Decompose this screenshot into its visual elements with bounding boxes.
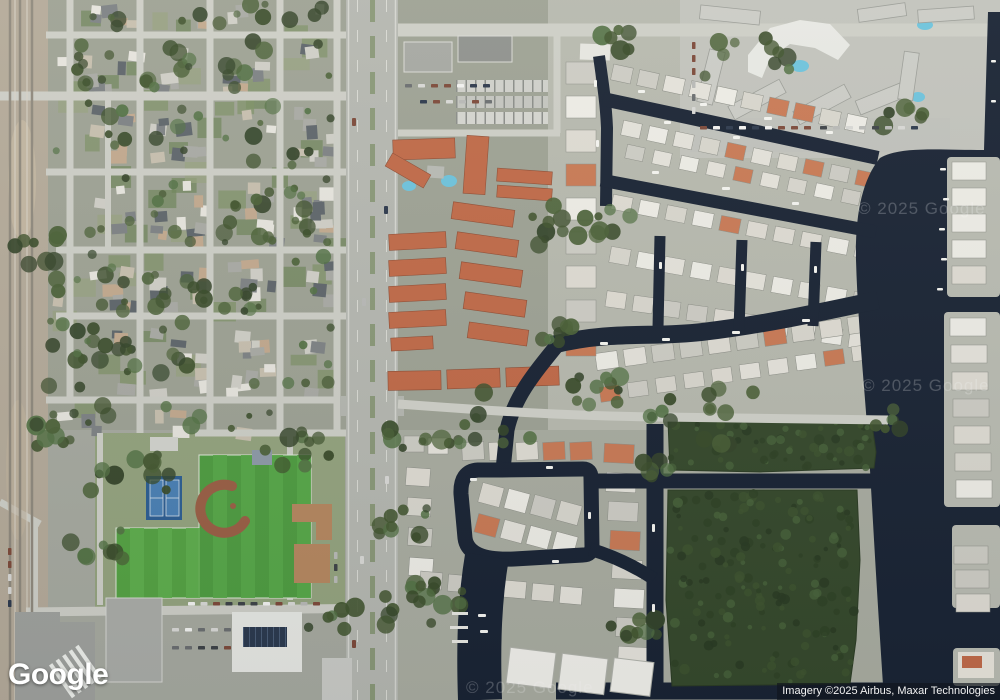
car [334,564,338,571]
tree [418,437,426,445]
satellite-map-canvas[interactable]: © 2025 Google © 2025 Google © 2025 Googl… [0,0,1000,700]
tree [660,463,674,477]
mangrove-canopy [798,553,802,557]
mangrove-canopy [779,622,786,629]
mangrove-canopy [763,581,767,585]
car [224,628,231,632]
mangrove-canopy [842,668,850,676]
car [778,126,785,130]
mangrove-canopy [760,456,768,464]
canal-home [683,371,705,389]
canal-home [627,380,649,398]
car [352,640,356,648]
tree [768,57,781,70]
car [418,84,425,88]
canal-home [566,266,596,288]
tree [590,221,609,240]
mangrove-canopy [813,589,822,598]
mangrove-canopy [800,507,808,515]
car [334,552,338,559]
canal-home [690,261,712,280]
mangrove-canopy [837,548,847,558]
boat [478,614,486,617]
house [158,118,169,126]
car [405,84,412,88]
house [315,157,327,167]
lawn [125,225,148,243]
tree [701,387,716,402]
mangrove-canopy [788,507,798,517]
mangrove-canopy [710,640,717,647]
tree [142,272,154,284]
tree [74,276,81,283]
tree [327,114,335,122]
tree [545,198,561,214]
tree [29,417,43,431]
tree [468,432,482,446]
tree [151,210,159,218]
tree [268,236,276,244]
tree [229,287,243,301]
mangrove-canopy [862,435,868,441]
car [362,298,366,306]
tree [87,322,100,335]
mangrove-canopy [699,579,703,583]
park-building [150,437,178,451]
tree [632,612,646,626]
tree [326,72,333,79]
tree [398,505,409,516]
boat [764,117,772,120]
car [898,126,905,130]
house [117,383,136,396]
tree [223,215,237,229]
canal-home [954,426,990,444]
mangrove-canopy [801,642,809,650]
mangrove-canopy [703,518,712,527]
condo-building [610,658,654,697]
mangrove-canopy [673,498,683,508]
mangrove-canopy [776,435,785,444]
car [211,646,218,650]
canal [658,236,660,328]
tree [323,450,334,461]
tree [569,226,588,245]
tree [470,406,487,423]
mangrove-canopy [778,559,786,567]
mangrove-canopy [723,562,728,567]
boat [741,264,744,271]
imagery-attribution: Imagery ©2025 Airbus, Maxar Technologies [777,683,1000,700]
tree [116,304,130,318]
boat [470,478,477,481]
tree [166,348,179,361]
tree [881,424,890,433]
mangrove-canopy [695,422,700,427]
tree [413,595,425,607]
mangrove-canopy [826,453,833,460]
tree [606,621,617,632]
townhome-row [447,368,501,389]
map-viewport[interactable]: © 2025 Google © 2025 Google © 2025 Googl… [0,0,1000,700]
mangrove-canopy [692,496,701,505]
canal-home [623,347,647,367]
canal-home [566,96,596,118]
tree [105,130,113,138]
car [700,126,707,130]
car [804,126,811,130]
car [483,84,490,88]
tree [83,482,99,498]
tree [274,457,290,473]
car [726,126,733,130]
canal-home [531,583,554,602]
tree [577,210,594,227]
tree [152,195,164,207]
tree [249,378,260,389]
mangrove-canopy [752,519,760,527]
tree [265,98,281,114]
mangrove-canopy [693,608,701,616]
tree [218,57,236,75]
car [276,602,283,606]
boat [594,80,597,87]
boat [802,319,810,322]
house [294,107,303,120]
tree [94,462,110,478]
canal-home [405,467,430,487]
mangrove-canopy [775,497,781,503]
car [446,100,453,104]
tree [193,111,203,121]
tree [582,398,596,412]
mangrove-canopy [674,448,679,453]
tree [572,396,582,406]
tree [322,376,335,389]
canal-home [604,443,635,464]
mangrove-canopy [719,608,726,615]
car [301,602,308,606]
tree [426,618,436,628]
canal-home [605,291,627,310]
mangrove-canopy [740,422,748,430]
mangrove-canopy [715,593,722,600]
mangrove-canopy [727,599,736,608]
car [692,81,696,88]
tree [279,428,298,447]
tree [635,454,652,471]
mangrove-canopy [820,626,830,636]
tree [111,342,126,357]
tree [717,404,734,421]
tree [228,81,241,94]
tree [53,147,60,154]
tree [712,434,731,453]
mangrove-canopy [761,626,766,631]
tree [299,218,316,235]
building [404,42,452,72]
mangrove-canopy [676,514,681,519]
tree [116,526,124,534]
mangrove-canopy [793,619,800,626]
tree [455,598,467,610]
boat [546,466,553,469]
tree [74,38,88,52]
mangrove-canopy [744,573,753,582]
tree [91,351,109,369]
canal-home [686,304,708,323]
tree [415,580,426,591]
car [833,126,840,130]
tree [696,431,713,448]
canal-home [566,164,596,186]
tree [299,341,308,350]
mangrove-canopy [845,516,853,524]
tree [324,360,332,368]
mangrove-canopy [780,594,790,604]
dock [452,640,468,643]
canal-home [956,480,992,498]
mow-stripe [158,528,172,598]
mangrove-canopy [739,492,749,502]
railroad-tracks [6,0,36,700]
mangrove-canopy [717,537,725,545]
mangrove-canopy [833,645,839,651]
mangrove-canopy [724,634,729,639]
mangrove-canopy [755,501,764,510]
lawn [152,12,167,30]
mangrove-canopy [778,586,782,590]
mangrove-canopy [733,423,739,429]
boat [941,258,947,261]
canal-home [595,351,619,371]
tree [51,284,65,298]
boat [722,187,730,190]
boat [991,60,996,63]
house [267,280,277,292]
mangrove-canopy [789,584,796,591]
tree [156,293,171,308]
tree [288,161,297,170]
lawn [144,252,163,271]
tree [646,610,665,629]
tree [313,39,323,49]
canal [813,242,816,326]
tree [310,287,318,295]
car [8,574,12,581]
canal-home [795,353,817,371]
mangrove-canopy [714,673,719,678]
tree [49,231,65,247]
tree [296,427,307,438]
tree [266,409,273,416]
canal-home [955,453,991,471]
mangrove-canopy [719,513,728,522]
mangrove-canopy [853,455,863,465]
tree [218,302,231,315]
mangrove-canopy [748,625,753,630]
mangrove-canopy [802,629,811,638]
mangrove-canopy [766,435,776,445]
mangrove-canopy [792,516,800,524]
tree [62,533,80,551]
dock [450,626,468,629]
car [885,126,892,130]
townhome-row [389,258,447,277]
tree [528,212,537,221]
mangrove-canopy [726,586,736,596]
mangrove-canopy [736,552,745,561]
townhome-row [389,310,447,329]
tree [169,180,179,190]
tree [458,587,466,595]
tree [622,208,637,223]
tree [162,468,176,482]
mangrove-canopy [757,534,762,539]
boat [480,630,488,633]
car [211,628,218,632]
mangrove-canopy [668,455,674,461]
house [310,341,325,354]
mangrove-canopy [837,428,844,435]
mangrove-canopy [847,659,853,665]
mangrove-canopy [671,660,678,667]
mangrove-canopy [846,597,851,602]
boat [652,604,655,612]
car [911,126,918,130]
house [241,259,260,269]
tree [312,432,325,445]
house [239,341,252,353]
canal-home [956,594,990,612]
tree [143,453,160,470]
mangrove-canopy [718,457,724,463]
mangrove-canopy [670,618,680,628]
tree [620,630,632,642]
mangrove-canopy [831,435,840,444]
tree [213,16,227,30]
tree [261,1,268,8]
car [444,84,451,88]
tree [323,175,331,183]
building [322,658,352,700]
tree [257,120,263,126]
mangrove-canopy [799,430,807,438]
boat [652,171,659,174]
canal-home [952,240,986,258]
canal-home [609,246,631,265]
mangrove-canopy [833,609,840,616]
car [384,206,388,214]
tree [498,425,509,436]
tree [47,318,54,325]
mangrove-canopy [780,529,791,540]
tree [382,428,394,440]
canal-home [819,319,843,339]
townhome-row [463,135,489,194]
tree [292,258,300,266]
mangrove-canopy [759,438,765,444]
mangrove-canopy [679,664,690,675]
mangrove-canopy [813,563,818,568]
house [231,375,243,389]
tree [282,377,294,389]
mangrove-canopy [731,622,736,627]
mangrove-canopy [749,489,758,498]
tree [600,372,612,384]
canal-home [955,570,989,588]
canal-home [823,349,845,367]
mangrove-canopy [726,462,734,470]
tree [411,526,429,544]
tree [422,504,430,512]
tree [249,283,257,291]
boat [552,560,559,563]
mangrove-canopy [688,459,694,465]
tree [896,99,914,117]
mangrove-canopy [841,586,852,597]
tree [149,82,160,93]
canal-home [950,318,986,336]
mangrove-canopy [803,461,811,469]
mangrove-canopy [846,526,851,531]
tree [246,154,261,169]
google-logo[interactable]: Google [8,658,108,692]
tree [323,238,331,246]
tree [108,14,115,21]
tree [523,431,537,445]
house [266,125,276,133]
tree [298,448,311,461]
car [8,561,12,568]
mangrove-canopy [766,528,772,534]
tree [177,105,186,114]
house [250,347,265,356]
car [185,646,192,650]
tree [41,378,57,394]
mangrove-canopy [753,582,760,589]
mansion-roof [962,656,982,668]
tree [433,595,453,615]
tree [241,307,249,315]
tree [222,135,229,142]
canal-home [767,358,789,376]
car [472,100,479,104]
mow-stripe [269,455,283,598]
house [111,223,127,234]
mangrove-canopy [827,592,836,601]
boat [826,131,833,134]
tree [45,419,60,434]
tree [170,119,186,135]
tree [304,147,314,157]
warehouse-row [456,96,548,108]
boat [659,262,662,269]
mangrove-canopy [704,491,713,500]
tree [187,281,199,293]
tree [152,364,169,381]
mangrove-canopy [836,447,842,453]
mangrove-canopy [680,575,687,582]
tree [69,409,78,418]
house [150,225,163,233]
tree [78,59,88,69]
mangrove-canopy [734,571,744,581]
boat [652,524,655,532]
building [106,598,162,682]
car [713,126,720,130]
tree [557,226,569,238]
